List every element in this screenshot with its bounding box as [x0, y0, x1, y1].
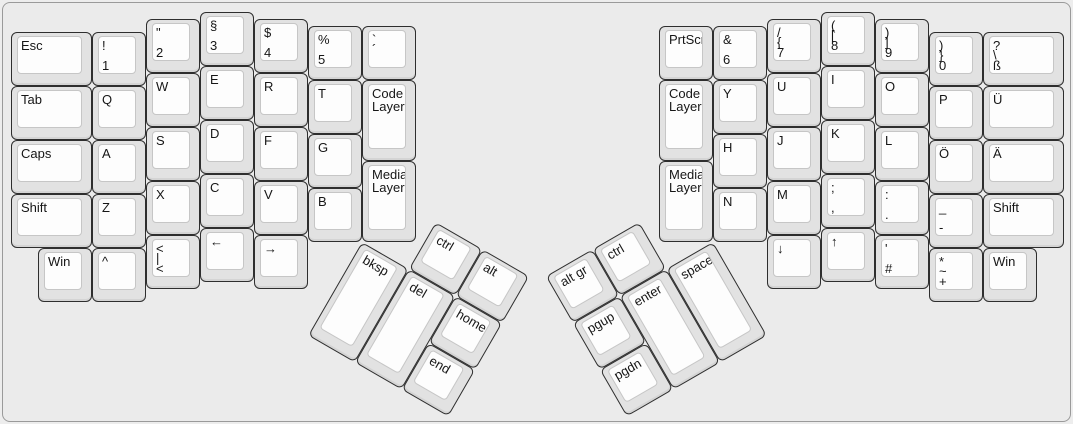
keycap-surface: !1 [98, 36, 136, 74]
keycap-surface: J [773, 131, 811, 169]
key-label: S [156, 134, 190, 147]
keycap-surface: S [152, 131, 190, 169]
key-label: bksp [361, 253, 397, 281]
key-arrow-down[interactable]: ↓ [767, 235, 821, 289]
key-1[interactable]: !1 [92, 32, 146, 86]
key-label: : [885, 188, 919, 201]
keycap-surface: Win [44, 252, 82, 290]
key-6[interactable]: &6 [713, 26, 767, 80]
key-label: < [156, 262, 190, 275]
key-9[interactable]: )]9 [875, 19, 929, 73]
key-label: ^ [102, 255, 136, 268]
keycap-surface: X [152, 185, 190, 223]
keycap-surface: I [827, 70, 865, 108]
keycap-surface: ↑ [827, 232, 865, 270]
key-label: 5 [318, 53, 352, 66]
keycap-surface: R [260, 77, 298, 115]
key-label: 1 [102, 59, 136, 72]
key-q[interactable]: Q [92, 86, 146, 140]
keycap-surface: Win [989, 252, 1027, 290]
keyboard-panel: Esc!1"2§3$4%5`´TabQWERTCode LayerCapsASD… [2, 2, 1071, 422]
key-label: Shift [21, 201, 82, 214]
key-a-umlaut[interactable]: Ä [983, 140, 1064, 194]
key-label: ctrl [434, 233, 470, 261]
key-m[interactable]: M [767, 181, 821, 235]
key-prtscr[interactable]: PrtScr [659, 26, 713, 80]
key-label: D [210, 127, 244, 140]
key-label: Ü [993, 93, 1054, 106]
key-label: J [777, 134, 811, 147]
key-3[interactable]: §3 [200, 12, 254, 66]
keycap-surface: Tab [17, 90, 82, 128]
key-label: C [210, 181, 244, 194]
key-label: Q [102, 93, 136, 106]
keycap-surface: Y [719, 84, 757, 122]
key-label: F [264, 134, 298, 147]
key-hash[interactable]: '# [875, 235, 929, 289]
key-label: Win [993, 255, 1027, 268]
key-label: ' [885, 242, 919, 255]
keycap-surface: L [881, 131, 919, 169]
keycap-surface: ctrl [420, 228, 472, 280]
keycap-surface: H [719, 138, 757, 176]
key-label: . [885, 208, 919, 221]
key-label: A [102, 147, 136, 160]
keycap-surface: Shift [17, 198, 82, 236]
key-2[interactable]: "2 [146, 19, 200, 73]
key-d[interactable]: D [200, 120, 254, 174]
keycap-surface: Code Layer [665, 84, 703, 149]
keycap-surface: )]9 [881, 23, 919, 61]
keycap-surface: )}0 [935, 36, 973, 74]
key-caret[interactable]: ^ [92, 248, 146, 302]
keycap-surface: :. [881, 185, 919, 223]
key-label: W [156, 80, 190, 93]
key-label: N [723, 195, 757, 208]
key-b[interactable]: B [308, 188, 362, 242]
key-label: Caps [21, 147, 82, 160]
key-label: _ [939, 201, 973, 214]
keycap-surface: Media Layer [368, 165, 406, 230]
key-less-than[interactable]: <|< [146, 235, 200, 289]
key-label: T [318, 87, 352, 100]
keycap-surface: alt gr [553, 257, 605, 309]
key-acute[interactable]: `´ [362, 26, 416, 80]
key-o-umlaut[interactable]: Ö [929, 140, 983, 194]
keycap-surface: /{7 [773, 23, 811, 61]
key-label: → [264, 242, 298, 255]
key-label: $ [264, 26, 298, 39]
keycap-surface: ?\ß [989, 36, 1054, 74]
key-label: I [831, 73, 865, 86]
keycap-surface: A [98, 144, 136, 182]
keycap-surface: §3 [206, 16, 244, 54]
keycap-surface: → [260, 239, 298, 277]
keycap-surface: K [827, 124, 865, 162]
keycap-surface: C [206, 178, 244, 216]
key-label: # [885, 262, 919, 275]
keycap-surface: N [719, 192, 757, 230]
keycap-surface: ([8 [827, 16, 865, 54]
keycap-surface: alt [467, 255, 519, 307]
key-label: Ö [939, 147, 973, 160]
keycap-surface: %5 [314, 30, 352, 68]
key-5[interactable]: %5 [308, 26, 362, 80]
keycap-surface: ← [206, 232, 244, 270]
keycap-surface: PrtScr [665, 30, 703, 68]
key-label: U [777, 80, 811, 93]
key-label: P [939, 93, 973, 106]
keycap-surface: <|< [152, 239, 190, 277]
key-label: Z [102, 201, 136, 214]
keycap-surface: Code Layer [368, 84, 406, 149]
key-x[interactable]: X [146, 181, 200, 235]
key-label: E [210, 73, 244, 86]
key-a[interactable]: A [92, 140, 146, 194]
key-label: Code Layer [372, 87, 406, 113]
keycap-surface: Ö [935, 144, 973, 182]
key-h[interactable]: H [713, 134, 767, 188]
keycap-surface: V [260, 185, 298, 223]
key-arrow-left[interactable]: ← [200, 228, 254, 282]
key-label: Media Layer [669, 168, 703, 194]
key-label: PrtScr [669, 33, 703, 46]
key-semicolon[interactable]: ;, [821, 174, 875, 228]
key-caps[interactable]: Caps [11, 140, 92, 194]
key-g[interactable]: G [308, 134, 362, 188]
keycap-surface: D [206, 124, 244, 162]
key-colon[interactable]: :. [875, 181, 929, 235]
key-plus[interactable]: *~+ [929, 248, 983, 302]
keycap-surface: F [260, 131, 298, 169]
key-shift-right[interactable]: Shift [983, 194, 1064, 248]
key-eszett[interactable]: ?\ß [983, 32, 1064, 86]
keycap-surface: W [152, 77, 190, 115]
keycap-surface: Media Layer [665, 165, 703, 230]
key-label: Win [48, 255, 82, 268]
key-k[interactable]: K [821, 120, 875, 174]
key-o[interactable]: O [875, 73, 929, 127]
key-label: 9 [885, 46, 919, 59]
key-label: K [831, 127, 865, 140]
keycap-surface: *~+ [935, 252, 973, 290]
keycap-surface: G [314, 138, 352, 176]
key-j[interactable]: J [767, 127, 821, 181]
key-label: X [156, 188, 190, 201]
key-4[interactable]: $4 [254, 19, 308, 73]
key-label: , [831, 201, 865, 214]
key-label: B [318, 195, 352, 208]
key-label: Media Layer [372, 168, 406, 194]
key-label: V [264, 188, 298, 201]
key-label: 3 [210, 39, 244, 52]
keycap-surface: Esc [17, 36, 82, 74]
keycap-surface: ^ [98, 252, 136, 290]
keycap-surface: ;, [827, 178, 865, 216]
keycap-surface: M [773, 185, 811, 223]
keycap-surface: E [206, 70, 244, 108]
keycap-surface: Shift [989, 198, 1054, 236]
keycap-surface: B [314, 192, 352, 230]
key-label: Shift [993, 201, 1054, 214]
key-label: 0 [939, 59, 973, 72]
key-label: 4 [264, 46, 298, 59]
key-label: ctrl [605, 233, 641, 261]
keycap-surface: O [881, 77, 919, 115]
key-media-layer-right[interactable]: Media Layer [659, 161, 713, 242]
keycap-surface: Q [98, 90, 136, 128]
keycap-surface: _- [935, 198, 973, 236]
key-underscore[interactable]: _- [929, 194, 983, 248]
keycap-surface: ↓ [773, 239, 811, 277]
key-label: § [210, 19, 244, 32]
keycap-surface: Z [98, 198, 136, 236]
key-arrow-up[interactable]: ↑ [821, 228, 875, 282]
keycap-surface: Ä [989, 144, 1054, 182]
key-label: - [939, 221, 973, 234]
key-u[interactable]: U [767, 73, 821, 127]
key-win-right[interactable]: Win [983, 248, 1037, 302]
key-label: Code Layer [669, 87, 703, 113]
key-t[interactable]: T [308, 80, 362, 134]
key-shift-left[interactable]: Shift [11, 194, 92, 248]
key-code-layer-right[interactable]: Code Layer [659, 80, 713, 161]
key-n[interactable]: N [713, 188, 767, 242]
key-label: alt [481, 260, 517, 288]
key-c[interactable]: C [200, 174, 254, 228]
key-label: Esc [21, 39, 82, 52]
key-e[interactable]: E [200, 66, 254, 120]
key-y[interactable]: Y [713, 80, 767, 134]
key-0[interactable]: )}0 [929, 32, 983, 86]
key-win-left[interactable]: Win [38, 248, 92, 302]
key-label: " [156, 26, 190, 39]
key-code-layer-left[interactable]: Code Layer [362, 80, 416, 161]
key-l[interactable]: L [875, 127, 929, 181]
key-v[interactable]: V [254, 181, 308, 235]
key-7[interactable]: /{7 [767, 19, 821, 73]
key-label: R [264, 80, 298, 93]
keycap-surface: Caps [17, 144, 82, 182]
key-label: Tab [21, 93, 82, 106]
keycap-surface: &6 [719, 30, 757, 68]
key-u-umlaut[interactable]: Ü [983, 86, 1064, 140]
key-8[interactable]: ([8 [821, 12, 875, 66]
key-i[interactable]: I [821, 66, 875, 120]
key-f[interactable]: F [254, 127, 308, 181]
key-label: ! [102, 39, 136, 52]
key-label: 2 [156, 46, 190, 59]
keycap-surface: `´ [368, 30, 406, 68]
key-label: H [723, 141, 757, 154]
key-esc[interactable]: Esc [11, 32, 92, 86]
key-label: 6 [723, 53, 757, 66]
key-r[interactable]: R [254, 73, 308, 127]
key-s[interactable]: S [146, 127, 200, 181]
key-label: ← [210, 235, 244, 248]
key-label: & [723, 33, 757, 46]
key-label: G [318, 141, 352, 154]
key-label: 7 [777, 46, 811, 59]
key-label: ↑ [831, 235, 865, 248]
key-label: + [939, 275, 973, 288]
key-label: Ä [993, 147, 1054, 160]
keycap-surface: '# [881, 239, 919, 277]
key-label: % [318, 33, 352, 46]
key-label: O [885, 80, 919, 93]
keycap-surface: P [935, 90, 973, 128]
keycap-surface: ctrl [600, 230, 652, 282]
key-p[interactable]: P [929, 86, 983, 140]
keycap-surface: Ü [989, 90, 1054, 128]
keycap-surface: U [773, 77, 811, 115]
key-w[interactable]: W [146, 73, 200, 127]
key-tab[interactable]: Tab [11, 86, 92, 140]
keycap-surface: "2 [152, 23, 190, 61]
key-label: ↓ [777, 242, 811, 255]
key-label: M [777, 188, 811, 201]
key-label: L [885, 134, 919, 147]
key-label: ´ [372, 42, 406, 55]
key-label: 8 [831, 39, 865, 52]
key-label: alt gr [558, 260, 594, 288]
key-label: space [678, 253, 714, 281]
keycap-surface: $4 [260, 23, 298, 61]
key-z[interactable]: Z [92, 194, 146, 248]
key-label: Y [723, 87, 757, 100]
keycap-surface: T [314, 84, 352, 122]
key-label: ; [831, 181, 865, 194]
key-label: ß [993, 59, 1054, 72]
key-arrow-right[interactable]: → [254, 235, 308, 289]
key-media-layer-left[interactable]: Media Layer [362, 161, 416, 242]
keyboard-layout-stage: Esc!1"2§3$4%5`´TabQWERTCode LayerCapsASD… [0, 0, 1073, 424]
